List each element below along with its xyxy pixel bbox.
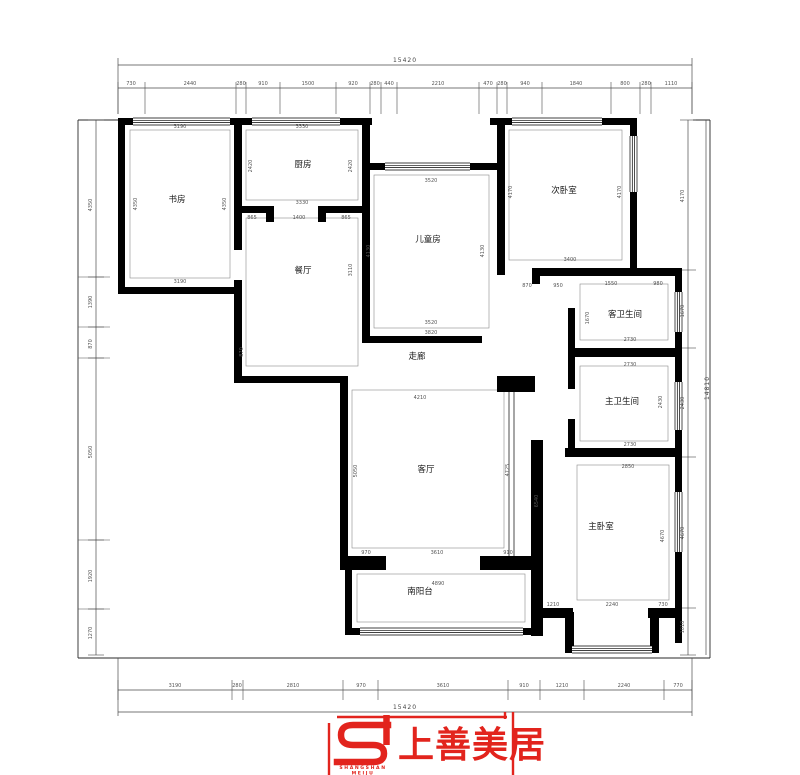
dim-label: 3400 xyxy=(564,257,577,263)
dim-label: 2420 xyxy=(248,160,254,173)
dim-label: 3520 xyxy=(425,320,438,326)
dim-labels-bottom: 31902802810970361091012102240770 xyxy=(169,683,683,689)
room-label: 儿童房 xyxy=(415,234,441,245)
dim-label: 4170 xyxy=(617,186,623,199)
dim-label: 1500 xyxy=(302,81,315,87)
dim-label: 2210 xyxy=(432,81,445,87)
window-bedroom2-top xyxy=(512,118,602,125)
dim-label: 5050 xyxy=(353,465,359,478)
window-bedroom2-right xyxy=(630,136,637,192)
dim-label: 4350 xyxy=(222,198,228,211)
dim-label: 4725 xyxy=(505,464,511,477)
windows xyxy=(133,118,682,653)
logo-mark-icon xyxy=(337,715,388,762)
dim-label: 3190 xyxy=(174,124,187,130)
dim-label: 2730 xyxy=(624,362,637,368)
dim-label: 3190 xyxy=(174,279,187,285)
dim-label: 770 xyxy=(673,683,683,689)
dim-label: 3330 xyxy=(296,124,309,130)
logo-subtext-line2: MEIJU xyxy=(352,771,375,775)
room-label: 厨房 xyxy=(294,159,311,170)
dim-label: 1550 xyxy=(605,281,618,287)
dim-label: 2850 xyxy=(622,464,635,470)
dim-label: 2430 xyxy=(658,396,664,409)
room-label: 客厅 xyxy=(417,464,435,475)
logo: SHANGSHAN MEIJU 上善美居 xyxy=(329,712,546,775)
dim-label: 280 xyxy=(236,81,246,87)
room-label: 主卧室 xyxy=(588,521,614,532)
floor-plan-canvas: 书房厨房餐厅儿童房次卧室客卫生间主卫生间走廊客厅主卧室南阳台 730244028… xyxy=(0,0,800,775)
dim-label: 2440 xyxy=(184,81,197,87)
room-label: 主卫生间 xyxy=(605,396,639,407)
dim-label: 2730 xyxy=(624,337,637,343)
walls xyxy=(118,118,682,653)
dim-label: 730 xyxy=(126,81,136,87)
dim-label: 470 xyxy=(483,81,493,87)
dim-label: 2240 xyxy=(618,683,631,689)
dim-label: 1270 xyxy=(88,627,94,640)
dim-label: 1110 xyxy=(665,81,678,87)
dim-label: 1010 xyxy=(680,621,686,634)
dim-label: 730 xyxy=(658,602,668,608)
dim-label: 280 xyxy=(641,81,651,87)
dim-label: 280 xyxy=(497,81,507,87)
dim-label: 3820 xyxy=(425,330,438,336)
dim-label: 280 xyxy=(370,81,380,87)
dim-label: 4350 xyxy=(133,198,139,211)
dim-label: 280 xyxy=(232,683,242,689)
dim-labels-left: 43501390870505019201270 xyxy=(88,199,94,640)
dim-label: 920 xyxy=(348,81,358,87)
dim-label: 1670 xyxy=(585,312,591,325)
dim-label: 4890 xyxy=(432,581,445,587)
dim-label: 2420 xyxy=(348,160,354,173)
room-label: 走廊 xyxy=(408,351,426,362)
dim-label: 4670 xyxy=(660,530,666,543)
dim-label: 870 xyxy=(88,339,94,349)
dim-label: 3110 xyxy=(348,264,354,277)
room-label: 次卧室 xyxy=(551,185,577,196)
dimension-lines xyxy=(78,58,706,716)
dim-label: 970 xyxy=(356,683,366,689)
dim-label: 2430 xyxy=(680,397,686,410)
dim-label: 910 xyxy=(503,550,513,556)
dim-label: 870 xyxy=(522,283,532,289)
dim-label: 1210 xyxy=(556,683,569,689)
dim-labels-top: 7302440280910150092028044022104702809401… xyxy=(126,81,677,87)
dim-label: 865 xyxy=(247,215,257,221)
room-label: 南阳台 xyxy=(407,586,433,597)
window-master-right xyxy=(675,492,682,552)
dim-label: 870 xyxy=(239,347,245,357)
dim-label: 3520 xyxy=(425,178,438,184)
dim-label: 800 xyxy=(620,81,630,87)
dim-label: 4670 xyxy=(680,527,686,540)
dim-label: 3190 xyxy=(169,683,182,689)
dim-label: 1400 xyxy=(293,215,306,221)
room-inner-outlines xyxy=(130,130,669,622)
room-label: 书房 xyxy=(168,194,185,205)
dim-label: 440 xyxy=(384,81,394,87)
window-child-top xyxy=(385,163,470,170)
dim-label: 980 xyxy=(653,281,663,287)
dim-label: 950 xyxy=(553,283,563,289)
dim-label: 5050 xyxy=(88,446,94,459)
floor-plan-page: 书房厨房餐厅儿童房次卧室客卫生间主卫生间走廊客厅主卧室南阳台 730244028… xyxy=(0,0,800,775)
total-dim-label: 15420 xyxy=(393,704,417,711)
dim-label: 940 xyxy=(520,81,530,87)
dim-label: 3610 xyxy=(437,683,450,689)
dim-label: 4170 xyxy=(508,186,514,199)
window-balcony-bottom xyxy=(360,628,523,635)
total-dim-label: 14810 xyxy=(704,376,711,400)
dim-label: 1390 xyxy=(88,296,94,309)
dim-label: 910 xyxy=(258,81,268,87)
dim-label: 3330 xyxy=(296,200,309,206)
dim-label: 4130 xyxy=(480,245,486,258)
dim-label: 2730 xyxy=(624,442,637,448)
logo-brand-name: 上善美居 xyxy=(398,725,546,766)
dim-label: 4210 xyxy=(414,395,427,401)
total-dim-label: 15420 xyxy=(393,57,417,64)
logo-subtext-line1: SHANGSHAN xyxy=(339,765,386,771)
dim-label: 1670 xyxy=(680,305,686,318)
dim-label: 1210 xyxy=(547,602,560,608)
dim-label: 910 xyxy=(519,683,529,689)
dim-label: 4170 xyxy=(680,190,686,203)
room-label: 餐厅 xyxy=(294,266,312,276)
window-bay-bottom xyxy=(572,646,652,653)
dim-label: 970 xyxy=(361,550,371,556)
dim-label: 4130 xyxy=(366,245,372,258)
dim-label: 1920 xyxy=(88,570,94,583)
dim-label: 3610 xyxy=(431,550,444,556)
dim-label: 6540 xyxy=(534,495,540,508)
dim-label: 4350 xyxy=(88,199,94,212)
room-label: 客卫生间 xyxy=(608,309,642,320)
dim-label: 1840 xyxy=(570,81,583,87)
dim-label: 865 xyxy=(341,215,351,221)
dim-label: 2810 xyxy=(287,683,300,689)
dim-label: 2240 xyxy=(606,602,619,608)
